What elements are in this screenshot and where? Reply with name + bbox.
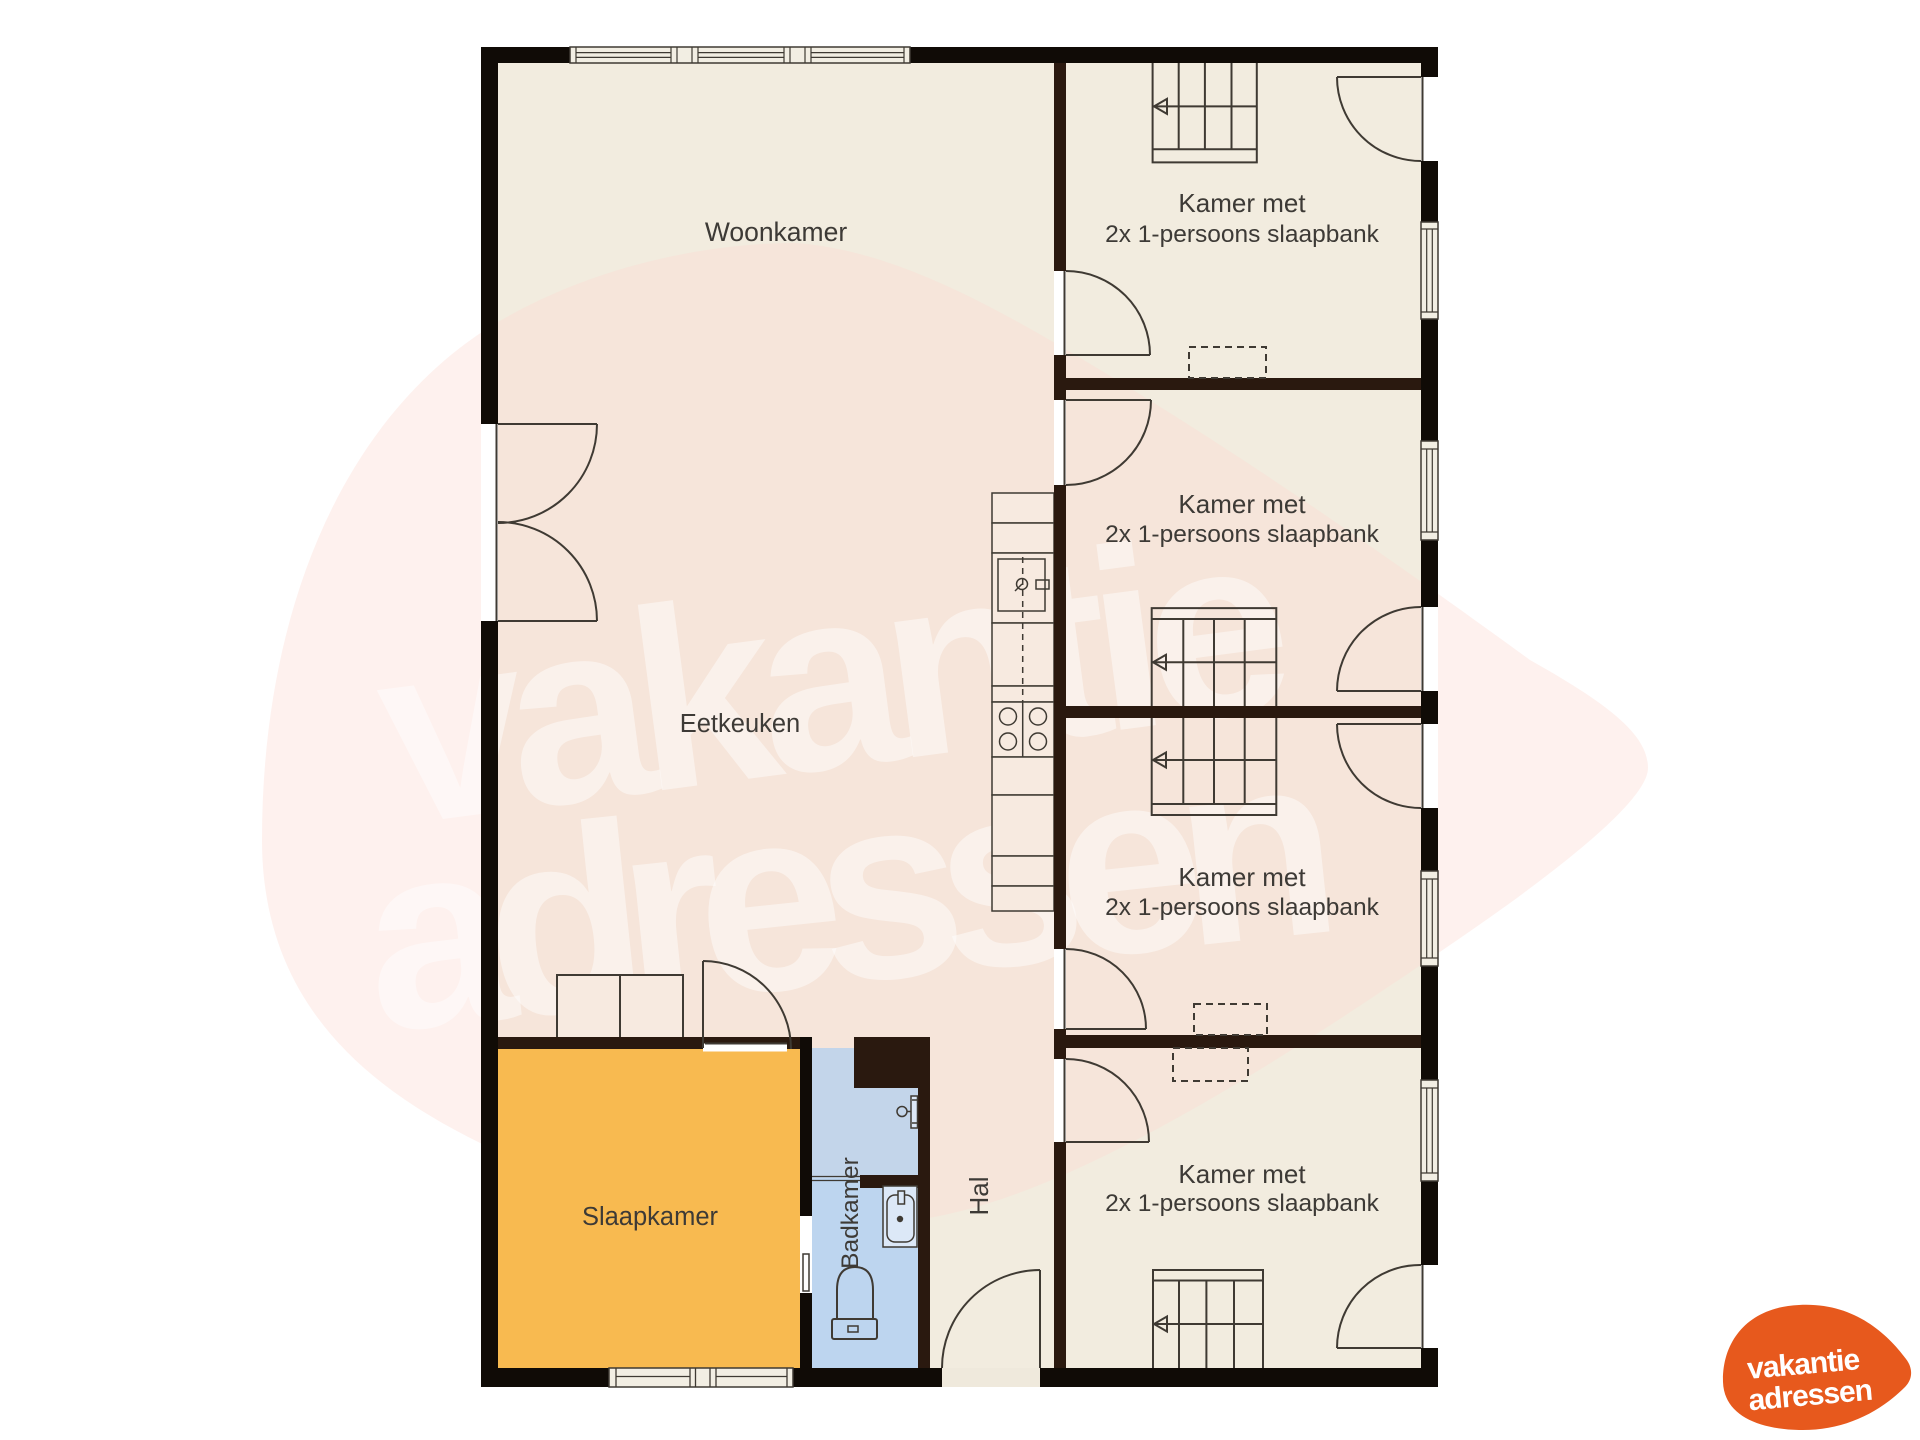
svg-text:Kamer met: Kamer met [1178, 1159, 1306, 1189]
svg-text:Woonkamer: Woonkamer [705, 217, 848, 247]
svg-text:Kamer met: Kamer met [1178, 188, 1306, 218]
svg-text:2x 1-persoons slaapbank: 2x 1-persoons slaapbank [1105, 221, 1380, 248]
svg-text:2x 1-persoons slaapbank: 2x 1-persoons slaapbank [1105, 894, 1380, 921]
svg-text:2x 1-persoons slaapbank: 2x 1-persoons slaapbank [1105, 521, 1380, 548]
svg-text:2x 1-persoons slaapbank: 2x 1-persoons slaapbank [1105, 1190, 1380, 1217]
svg-text:Slaapkamer: Slaapkamer [582, 1203, 719, 1231]
svg-text:Kamer met: Kamer met [1178, 862, 1306, 892]
svg-text:Badkamer: Badkamer [837, 1157, 864, 1269]
svg-text:Eetkeuken: Eetkeuken [680, 710, 801, 738]
svg-text:Hal: Hal [964, 1176, 994, 1215]
svg-text:Kamer met: Kamer met [1178, 489, 1306, 519]
